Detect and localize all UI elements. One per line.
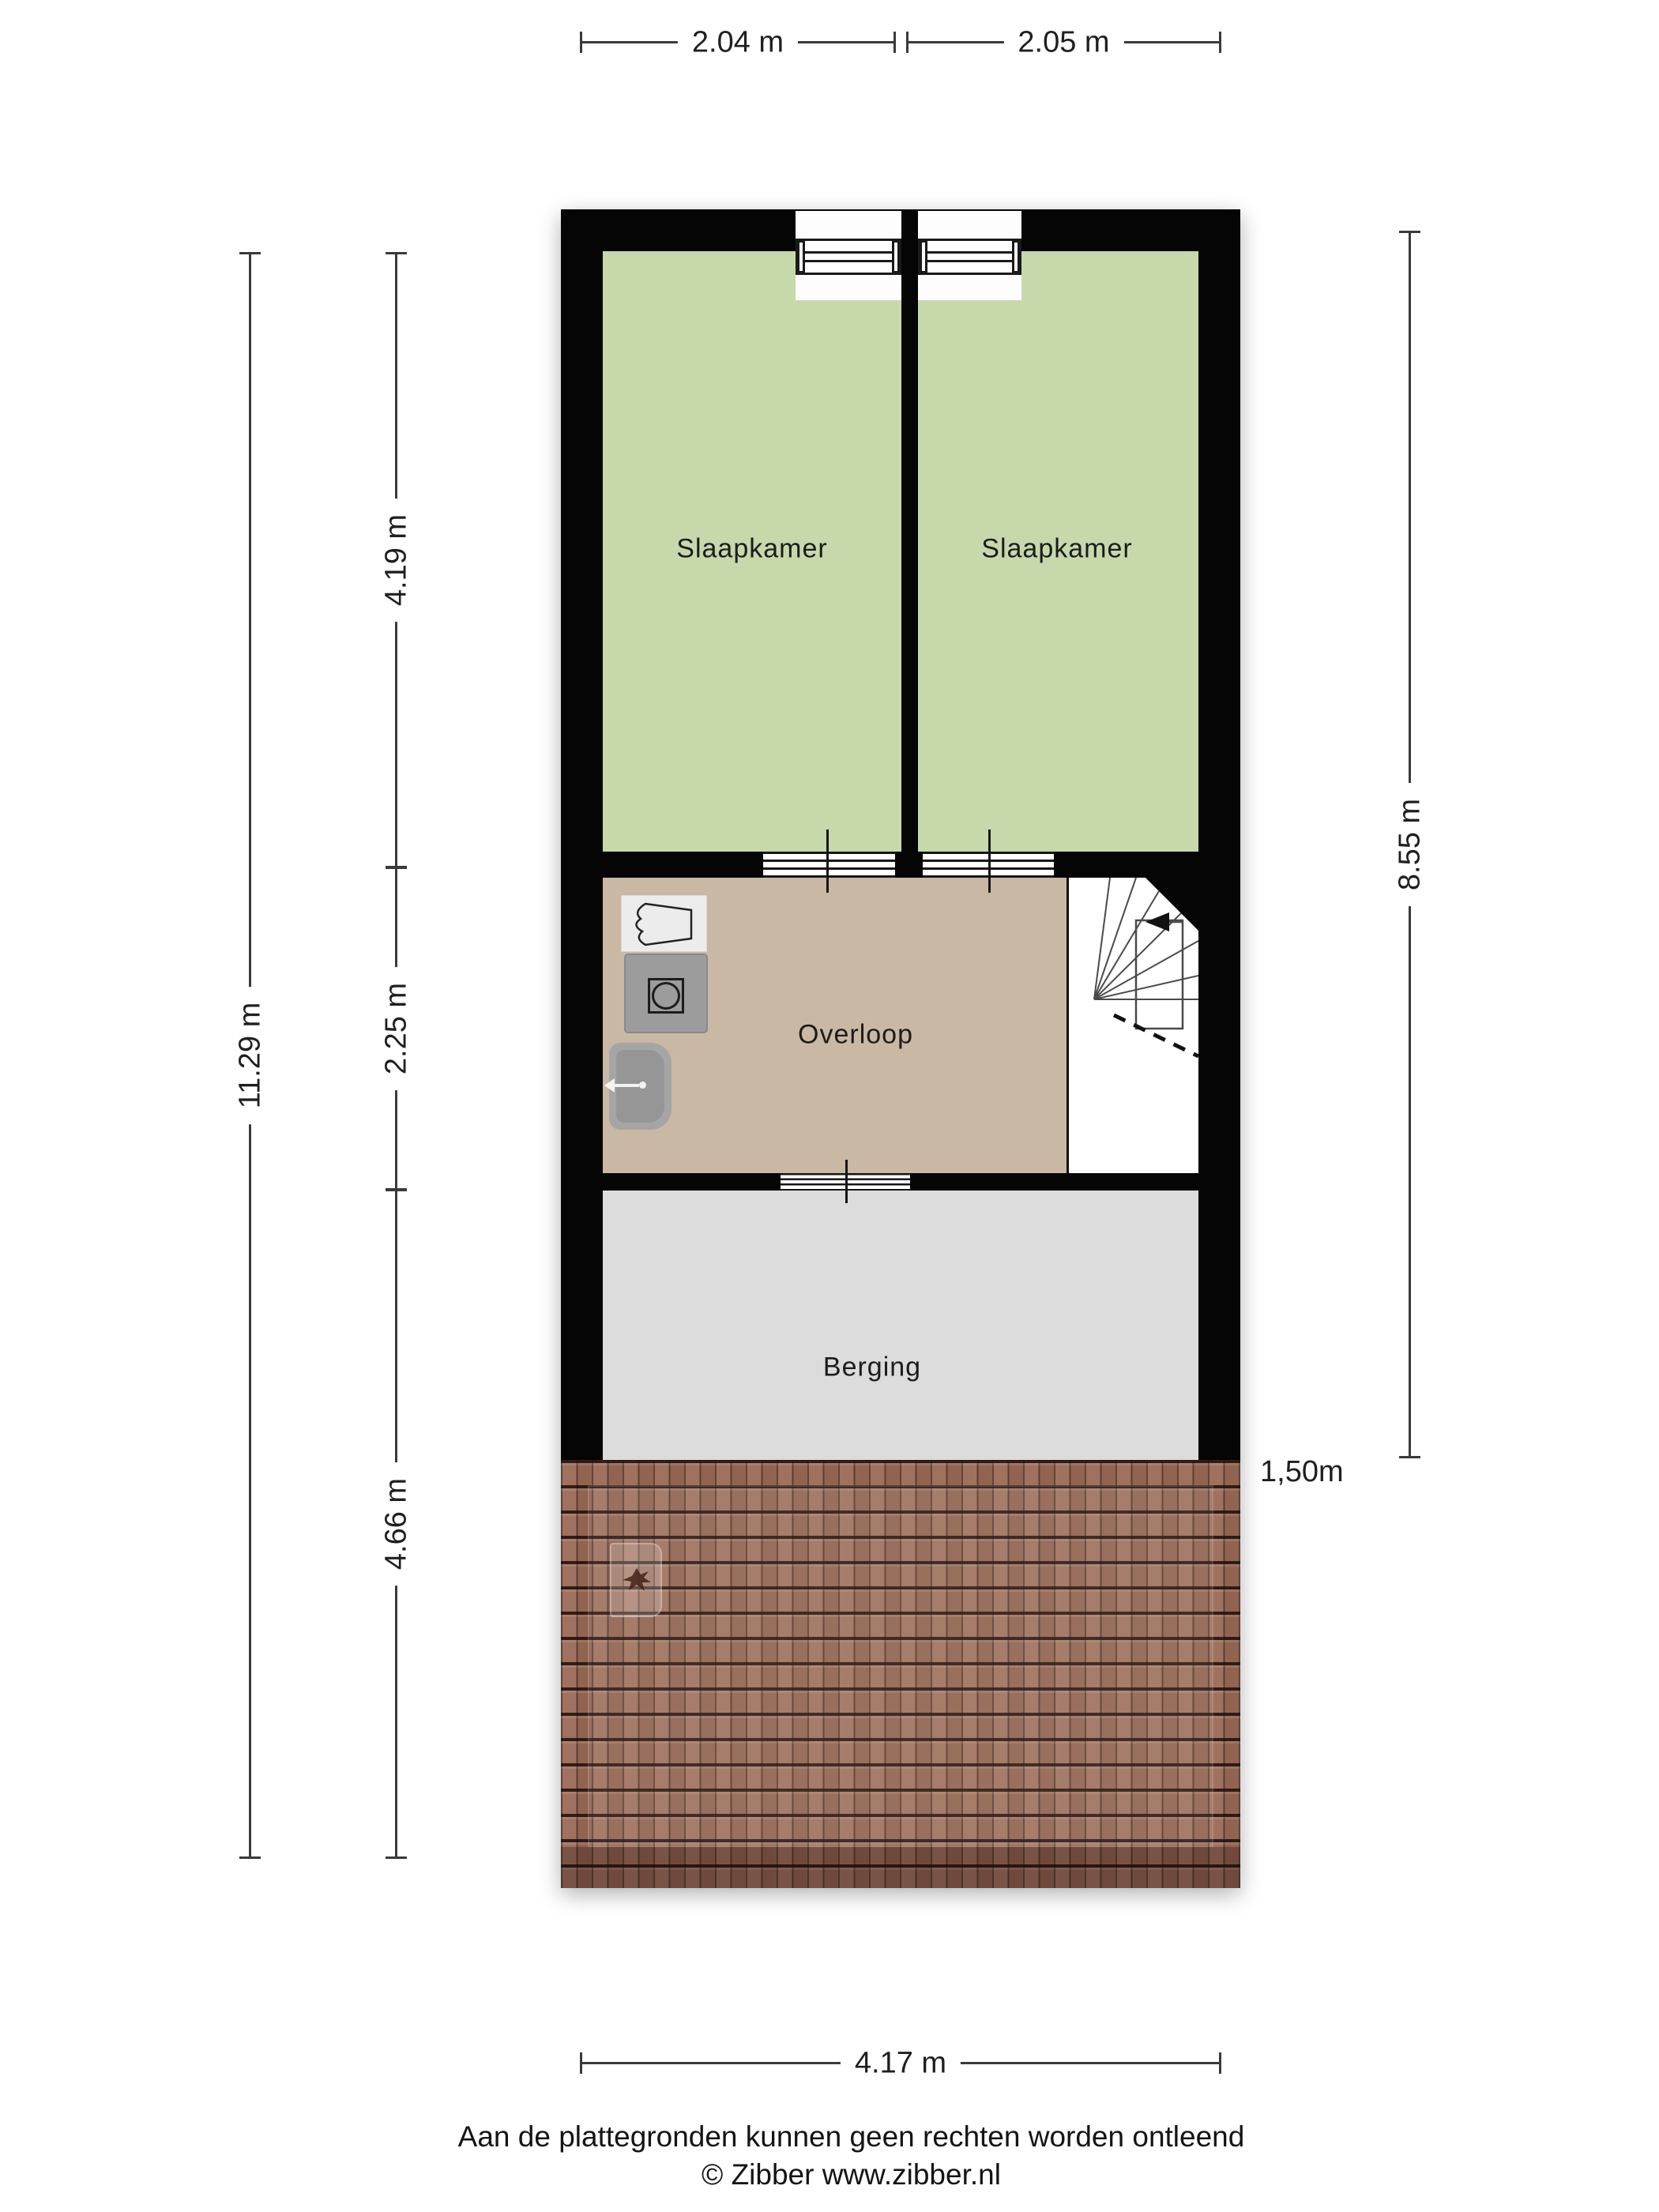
window-bedroom-left <box>796 211 901 300</box>
window-frame-icon <box>918 239 1021 275</box>
washer-drum-icon <box>652 982 680 1010</box>
dimension-top-right: 2.05 m <box>907 41 1221 43</box>
roof-ornament-icon <box>623 1568 651 1591</box>
roof-eave-shadow <box>561 1847 1240 1888</box>
sink-counter-icon <box>621 895 707 952</box>
dimension-label: 2.04 m <box>678 24 798 61</box>
roof-bevel <box>588 1485 1213 1847</box>
copyright-text: © Zibber www.zibber.nl <box>43 2158 1659 2191</box>
room-label-bedroom-right: Slaapkamer <box>981 534 1132 565</box>
dimension-bottom: 4.17 m <box>581 2062 1221 2064</box>
door-leaf-icon <box>988 829 991 893</box>
dimension-top-left: 2.04 m <box>581 41 895 43</box>
window-bedroom-right <box>918 211 1021 300</box>
window-frame-icon <box>796 239 901 275</box>
dimension-right: 8.55 m <box>1409 231 1411 1458</box>
dimension-label: 8.55 m <box>1391 783 1428 906</box>
room-label-bedroom-left: Slaapkamer <box>676 534 827 565</box>
wall-right <box>1198 209 1240 1460</box>
room-label-storage: Berging <box>823 1352 921 1383</box>
dimension-left-seg-3: 4.66 m <box>395 1190 397 1858</box>
dimension-label: 4.19 m <box>378 498 415 622</box>
faucet-dot-icon <box>639 1082 646 1089</box>
room-storage <box>603 1191 1198 1460</box>
dimension-left-seg-1: 4.19 m <box>395 253 397 867</box>
door-leaf-icon <box>845 1160 848 1203</box>
wall-bedrooms-landing <box>603 852 1198 878</box>
washer-door-icon <box>648 978 684 1014</box>
dimension-label: 2.05 m <box>1003 24 1123 61</box>
floor-plan: Slaapkamer Slaapkamer Overloop Berging <box>561 209 1240 1888</box>
dimension-left-seg-2: 2.25 m <box>395 867 397 1190</box>
dimension-left-total: 11.29 m <box>249 253 251 1858</box>
disclaimer-text: Aan de plattegronden kunnen geen rechten… <box>43 2120 1659 2154</box>
footer: Aan de plattegronden kunnen geen rechten… <box>43 2120 1659 2207</box>
dimension-label: 11.29 m <box>231 987 269 1124</box>
wall-left <box>561 209 603 1460</box>
room-label-landing: Overloop <box>798 1020 913 1051</box>
door-leaf-icon <box>826 829 829 893</box>
dimension-label: 4.66 m <box>378 1462 415 1586</box>
dimension-label: 2.25 m <box>378 967 415 1090</box>
dimension-label: 4.17 m <box>841 2045 961 2082</box>
roof-window-icon <box>610 1543 662 1617</box>
door-bedroom-left <box>763 852 895 878</box>
faucet-head-icon <box>604 1078 615 1093</box>
wall-bedroom-divider <box>901 209 918 878</box>
roof-depth-label: 1,50m <box>1260 1455 1344 1489</box>
staircase <box>1066 878 1198 1173</box>
washing-machine-icon <box>624 954 708 1033</box>
washbasin-icon <box>609 1043 671 1130</box>
roof-tiles <box>561 1460 1240 1888</box>
